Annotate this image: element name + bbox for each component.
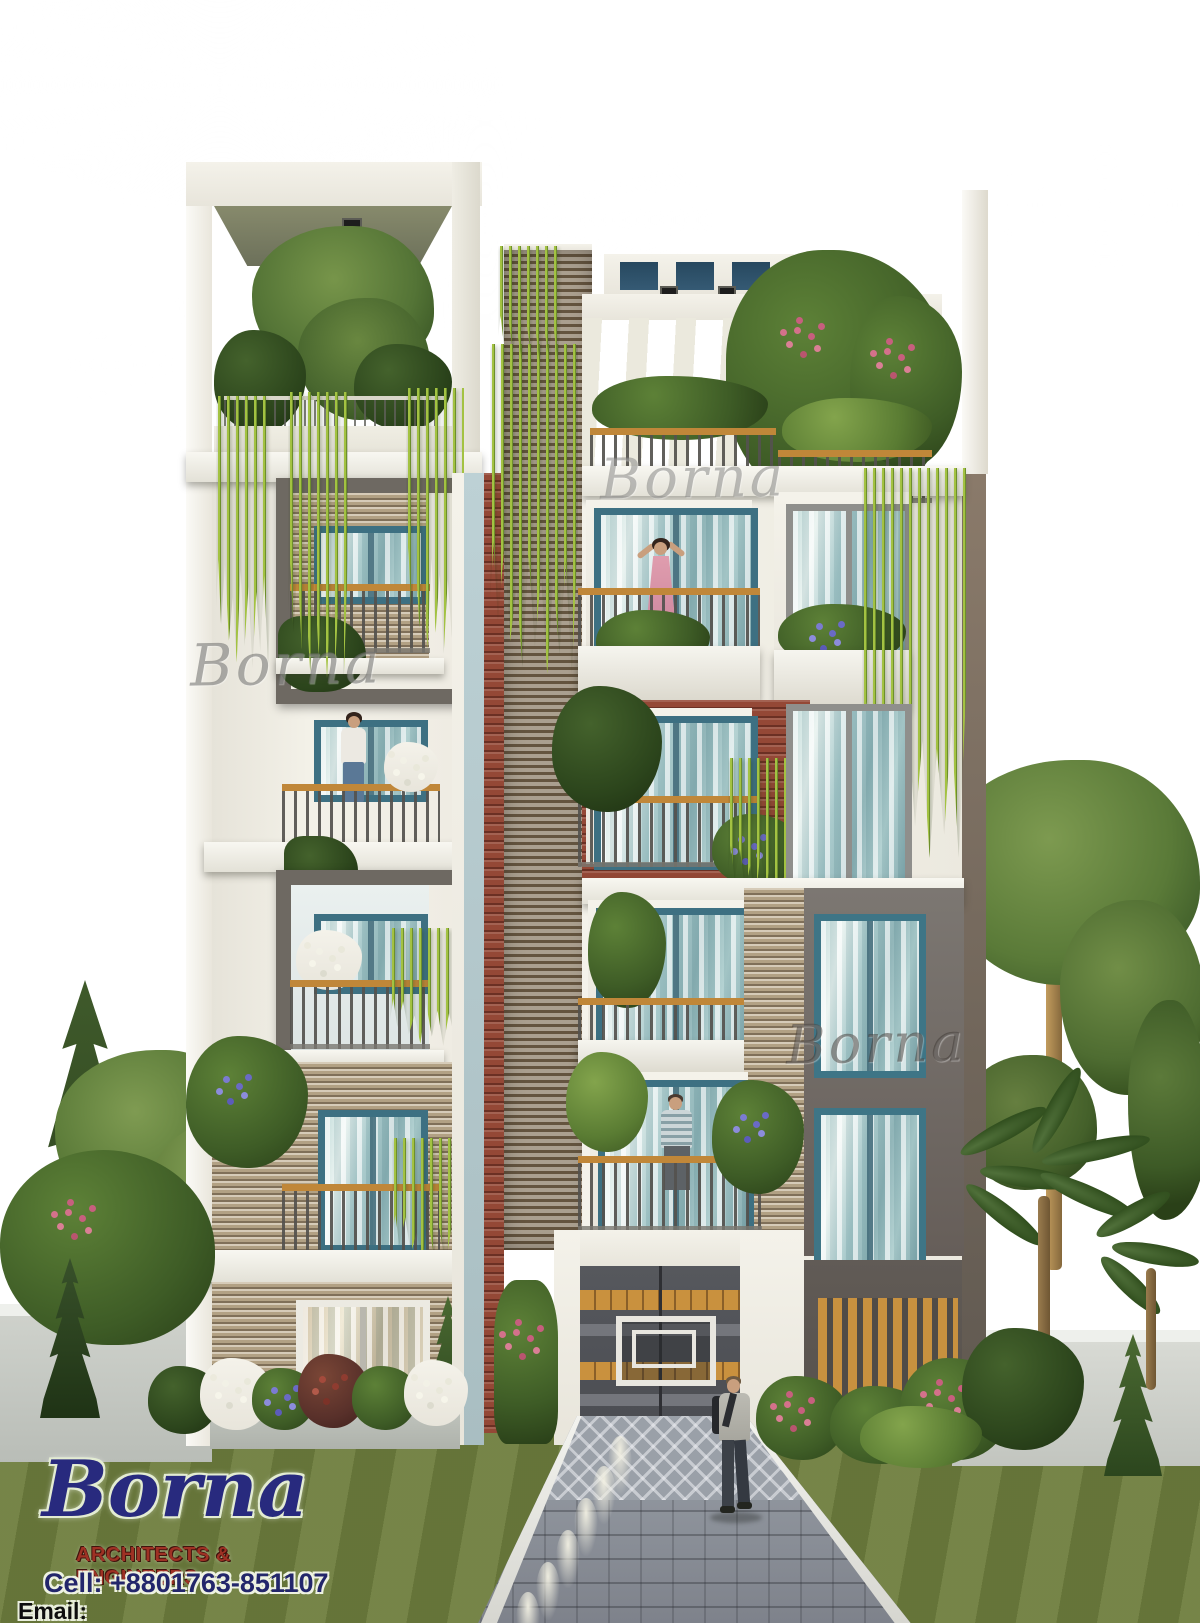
brick-column [484,473,504,1433]
watermark-borna: Borna [785,1010,966,1076]
logo-block: Borna ARCHITECTS & ENGINEERS Cell: +8801… [18,1450,358,1622]
person-torso [661,1110,692,1148]
person-leg [722,1440,734,1508]
pampas-grass [536,1562,560,1620]
parapet-opening [620,262,658,290]
person-torso [341,728,366,764]
entry-hedge [494,1280,558,1444]
tree-foliage [1128,1000,1200,1220]
tall-window [786,704,912,900]
logo-cell-number: Cell: +8801763-851107 [44,1568,329,1599]
gate-emblem [616,1316,716,1386]
person-head [727,1379,740,1393]
person-head [654,542,667,555]
roof-frame-top-bar [186,162,482,206]
person-head [669,1097,682,1110]
person-shoe [720,1506,735,1513]
architectural-rendering-canvas: Borna Borna Borna [0,0,1200,1623]
person-man-walking [706,1376,762,1524]
logo-email: Email: bornaengineering@gmail.com [18,1598,358,1623]
parapet-opening [676,262,714,290]
person-shadow [710,1512,762,1523]
watermark-borna: Borna [599,444,786,512]
bougainvillea-left [0,1150,215,1345]
pampas-grass [556,1530,580,1588]
roof-pillar-right [962,190,988,474]
cyan-accent-band [464,473,484,1445]
person-leg [734,1440,750,1505]
person-head [348,716,360,728]
person-shoe [737,1502,752,1509]
facade-strip [452,473,464,1445]
logo-borna: Borna [42,1444,308,1535]
palm-trunk [1146,1268,1156,1390]
gate-emblem-inner [632,1330,696,1368]
floor-slab [204,1250,474,1282]
window [814,1108,926,1270]
watermark-borna: Borna [189,628,382,699]
cloud [980,140,1200,270]
entrance-beam [554,1230,766,1266]
